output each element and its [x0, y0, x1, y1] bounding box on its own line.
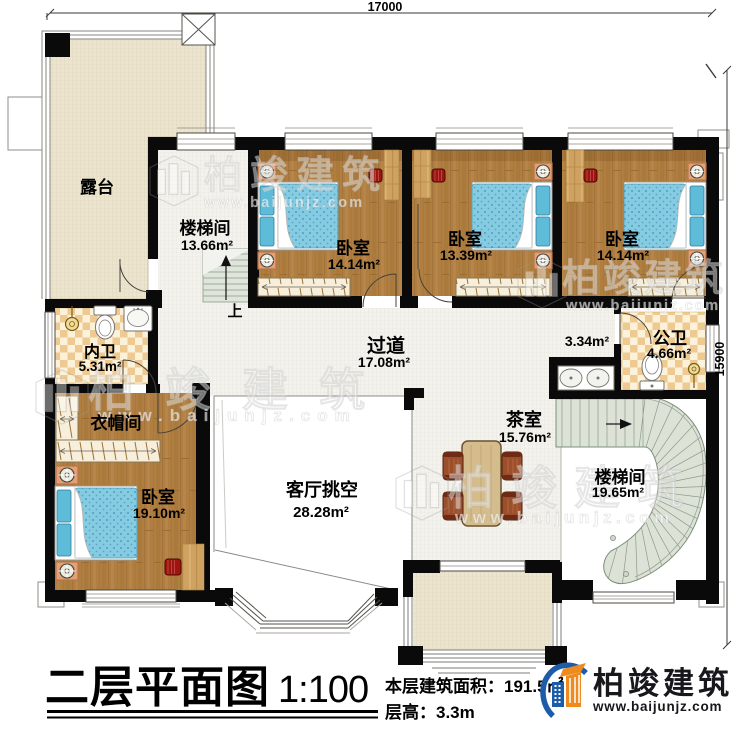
svg-text:层高：3.3m: 层高：3.3m: [385, 702, 475, 722]
svg-text:柏竣建筑: 柏竣建筑: [204, 155, 388, 197]
svg-text:衣帽间: 衣帽间: [91, 413, 142, 433]
svg-text:客厅挑空: 客厅挑空: [286, 479, 358, 500]
svg-text:本层建筑面积：191.5㎡: 本层建筑面积：191.5㎡: [385, 676, 564, 696]
svg-text:17000: 17000: [368, 0, 403, 14]
svg-text:www.baijunjz.com: www.baijunjz.com: [454, 508, 674, 527]
svg-text:19.65m²: 19.65m²: [592, 484, 644, 500]
svg-text:卧室: 卧室: [336, 238, 370, 258]
svg-text:卧室: 卧室: [141, 487, 175, 507]
svg-text:15900: 15900: [713, 342, 727, 377]
svg-text:28.28m²: 28.28m²: [293, 504, 349, 521]
svg-text:4.66m²: 4.66m²: [647, 345, 692, 361]
svg-text:1:100: 1:100: [278, 669, 368, 711]
svg-text:卧室: 卧室: [605, 229, 639, 249]
svg-text:茶室: 茶室: [506, 409, 542, 430]
svg-text:二层平面图: 二层平面图: [45, 663, 270, 712]
svg-text:www.baijunjz.com: www.baijunjz.com: [565, 298, 720, 314]
svg-text:3.34m²: 3.34m²: [565, 333, 610, 349]
svg-text:楼梯间: 楼梯间: [180, 218, 231, 238]
svg-text:14.14m²: 14.14m²: [597, 247, 649, 263]
svg-text:17.08m²: 17.08m²: [358, 354, 410, 370]
svg-text:柏竣建筑: 柏竣建筑: [593, 666, 733, 701]
svg-text:www.baijunjz.com: www.baijunjz.com: [592, 699, 722, 714]
svg-text:卧室: 卧室: [448, 229, 482, 249]
svg-text:13.66m²: 13.66m²: [181, 237, 233, 253]
svg-text:柏竣建筑: 柏竣建筑: [562, 258, 726, 300]
svg-text:柏竣建筑: 柏竣建筑: [448, 462, 700, 514]
svg-text:13.39m²: 13.39m²: [440, 247, 492, 263]
svg-text:5.31m²: 5.31m²: [79, 359, 122, 374]
svg-text:www.baijunjz.com: www.baijunjz.com: [203, 195, 364, 211]
svg-text:上: 上: [227, 303, 242, 320]
svg-text:14.14m²: 14.14m²: [328, 256, 380, 272]
svg-text:15.76m²: 15.76m²: [499, 429, 551, 445]
svg-text:露台: 露台: [80, 177, 114, 197]
svg-text:19.10m²: 19.10m²: [133, 505, 185, 521]
